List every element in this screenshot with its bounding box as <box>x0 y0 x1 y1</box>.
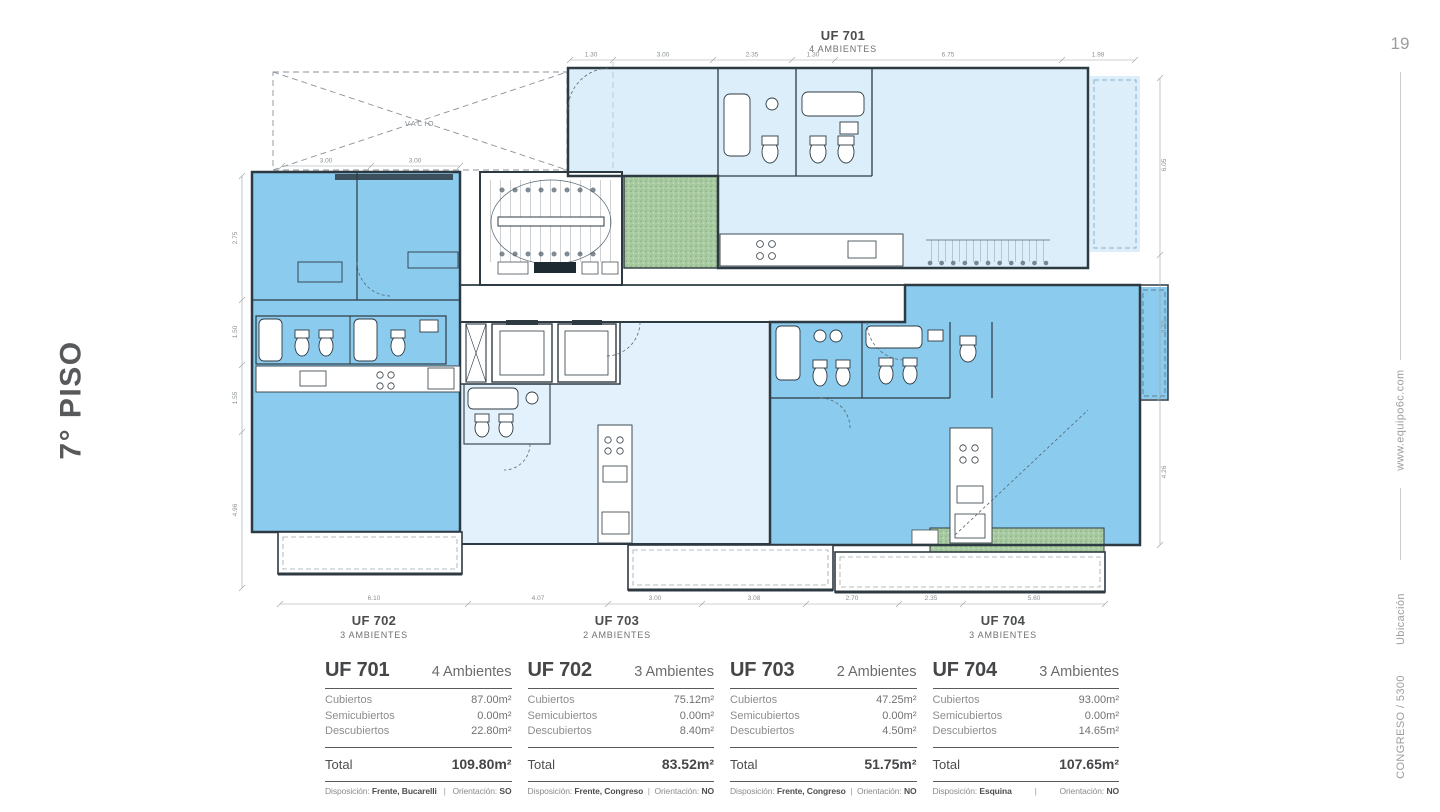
svg-text:6.05: 6.05 <box>1161 158 1168 171</box>
unit-ambientes: 3 Ambientes <box>1039 664 1119 680</box>
website-link[interactable]: www.equipo6c.com <box>1395 369 1407 470</box>
table-row: Semicubiertos0.00m² <box>933 709 1120 725</box>
uf701-type: 4 AMBIENTES <box>809 44 877 54</box>
unit-summary-uf701: UF 701 4 Ambientes Cubiertos87.00m² Semi… <box>325 659 512 796</box>
unit-ambientes: 4 Ambientes <box>432 664 512 680</box>
project-container: CONGRESO / 5300 Ubicación <box>1358 560 1440 812</box>
uf701-stair <box>926 240 1050 263</box>
table-row: Semicubiertos0.00m² <box>528 709 715 725</box>
svg-text:6.10: 6.10 <box>368 595 381 602</box>
divider <box>528 688 715 689</box>
divider <box>325 747 512 748</box>
total-row: Total107.65m² <box>933 753 1120 776</box>
divider <box>528 781 715 782</box>
section-label: Ubicación <box>1395 593 1407 645</box>
unit-name: UF 701 <box>325 659 389 682</box>
table-row: Descubiertos8.40m² <box>528 724 715 740</box>
uf702-label: UF 702 <box>352 613 396 628</box>
unit-ambientes: 3 Ambientes <box>634 664 714 680</box>
svg-text:3.08: 3.08 <box>748 595 761 602</box>
divider <box>730 688 917 689</box>
total-row: Total109.80m² <box>325 753 512 776</box>
divider <box>325 781 512 782</box>
table-row: Semicubiertos0.00m² <box>730 709 917 725</box>
svg-text:2.70: 2.70 <box>846 595 859 602</box>
svg-text:1.50: 1.50 <box>232 325 239 338</box>
table-row: Cubiertos75.12m² <box>528 693 715 709</box>
svg-text:3.00: 3.00 <box>409 158 422 165</box>
floor-plan: VACIO <box>225 18 1185 666</box>
uf702-type: 3 AMBIENTES <box>340 630 408 640</box>
table-row: Cubiertos93.00m² <box>933 693 1120 709</box>
svg-text:2.35: 2.35 <box>925 595 938 602</box>
divider <box>325 688 512 689</box>
svg-text:2.35: 2.35 <box>746 52 759 59</box>
uf704-type: 3 AMBIENTES <box>969 630 1037 640</box>
divider <box>933 688 1120 689</box>
right-rail-divider-top <box>1400 72 1401 360</box>
uf704-label: UF 704 <box>981 613 1026 628</box>
svg-text:3.00: 3.00 <box>320 158 333 165</box>
terrace-green-1 <box>624 176 718 268</box>
svg-text:3.72: 3.72 <box>1161 320 1168 333</box>
svg-text:1.55: 1.55 <box>232 391 239 404</box>
floor-title: 7° PISO <box>55 340 89 459</box>
divider <box>730 747 917 748</box>
units-summary-table: UF 701 4 Ambientes Cubiertos87.00m² Semi… <box>325 659 1119 796</box>
table-row: Cubiertos87.00m² <box>325 693 512 709</box>
svg-text:1.98: 1.98 <box>1092 52 1105 59</box>
right-rail-divider-bottom <box>1400 488 1401 560</box>
table-row: Descubiertos22.80m² <box>325 724 512 740</box>
divider <box>730 781 917 782</box>
svg-text:4.26: 4.26 <box>1161 465 1168 478</box>
project-name: CONGRESO / 5300 <box>1395 675 1407 779</box>
svg-text:3.00: 3.00 <box>649 595 662 602</box>
unit-summary-uf702: UF 702 3 Ambientes Cubiertos75.12m² Semi… <box>528 659 715 796</box>
unit-ambientes: 2 Ambientes <box>837 664 917 680</box>
total-row: Total51.75m² <box>730 753 917 776</box>
floor-title-container: 7° PISO <box>10 300 134 500</box>
unit-footer: Disposición: Esquina | Orientación: NO <box>933 786 1120 796</box>
divider <box>933 781 1120 782</box>
unit-summary-uf704: UF 704 3 Ambientes Cubiertos93.00m² Semi… <box>933 659 1120 796</box>
unit-name: UF 702 <box>528 659 592 682</box>
uf701-kitchen <box>720 234 903 266</box>
website-container: www.equipo6c.com <box>1368 360 1434 480</box>
unit-name: UF 704 <box>933 659 997 682</box>
table-row: Semicubiertos0.00m² <box>325 709 512 725</box>
uf701-label: UF 701 <box>821 28 865 43</box>
total-row: Total83.52m² <box>528 753 715 776</box>
svg-text:6.75: 6.75 <box>942 52 955 59</box>
divider <box>528 747 715 748</box>
void-label: VACIO <box>405 119 435 128</box>
unit-summary-uf703: UF 703 2 Ambientes Cubiertos47.25m² Semi… <box>730 659 917 796</box>
divider <box>933 747 1120 748</box>
table-row: Descubiertos4.50m² <box>730 724 917 740</box>
svg-text:3.00: 3.00 <box>657 52 670 59</box>
uf704-balcony <box>1140 287 1168 399</box>
table-row: Cubiertos47.25m² <box>730 693 917 709</box>
main-stair <box>486 180 618 274</box>
unit-footer: Disposición: Frente, Bucarelli | Orienta… <box>325 786 512 796</box>
page-number: 19 <box>1378 34 1422 54</box>
svg-text:4.96: 4.96 <box>232 503 239 516</box>
uf703-label: UF 703 <box>595 613 639 628</box>
svg-text:4.07: 4.07 <box>532 595 545 602</box>
uf701-balcony <box>1090 76 1140 252</box>
unit-footer: Disposición: Frente, Congreso | Orientac… <box>730 786 917 796</box>
svg-text:5.60: 5.60 <box>1028 595 1041 602</box>
uf703-type: 2 AMBIENTES <box>583 630 651 640</box>
table-row: Descubiertos14.65m² <box>933 724 1120 740</box>
unit-name: UF 703 <box>730 659 794 682</box>
svg-text:1.30: 1.30 <box>585 52 598 59</box>
unit-footer: Disposición: Frente, Congreso | Orientac… <box>528 786 715 796</box>
svg-text:2.75: 2.75 <box>232 231 239 244</box>
